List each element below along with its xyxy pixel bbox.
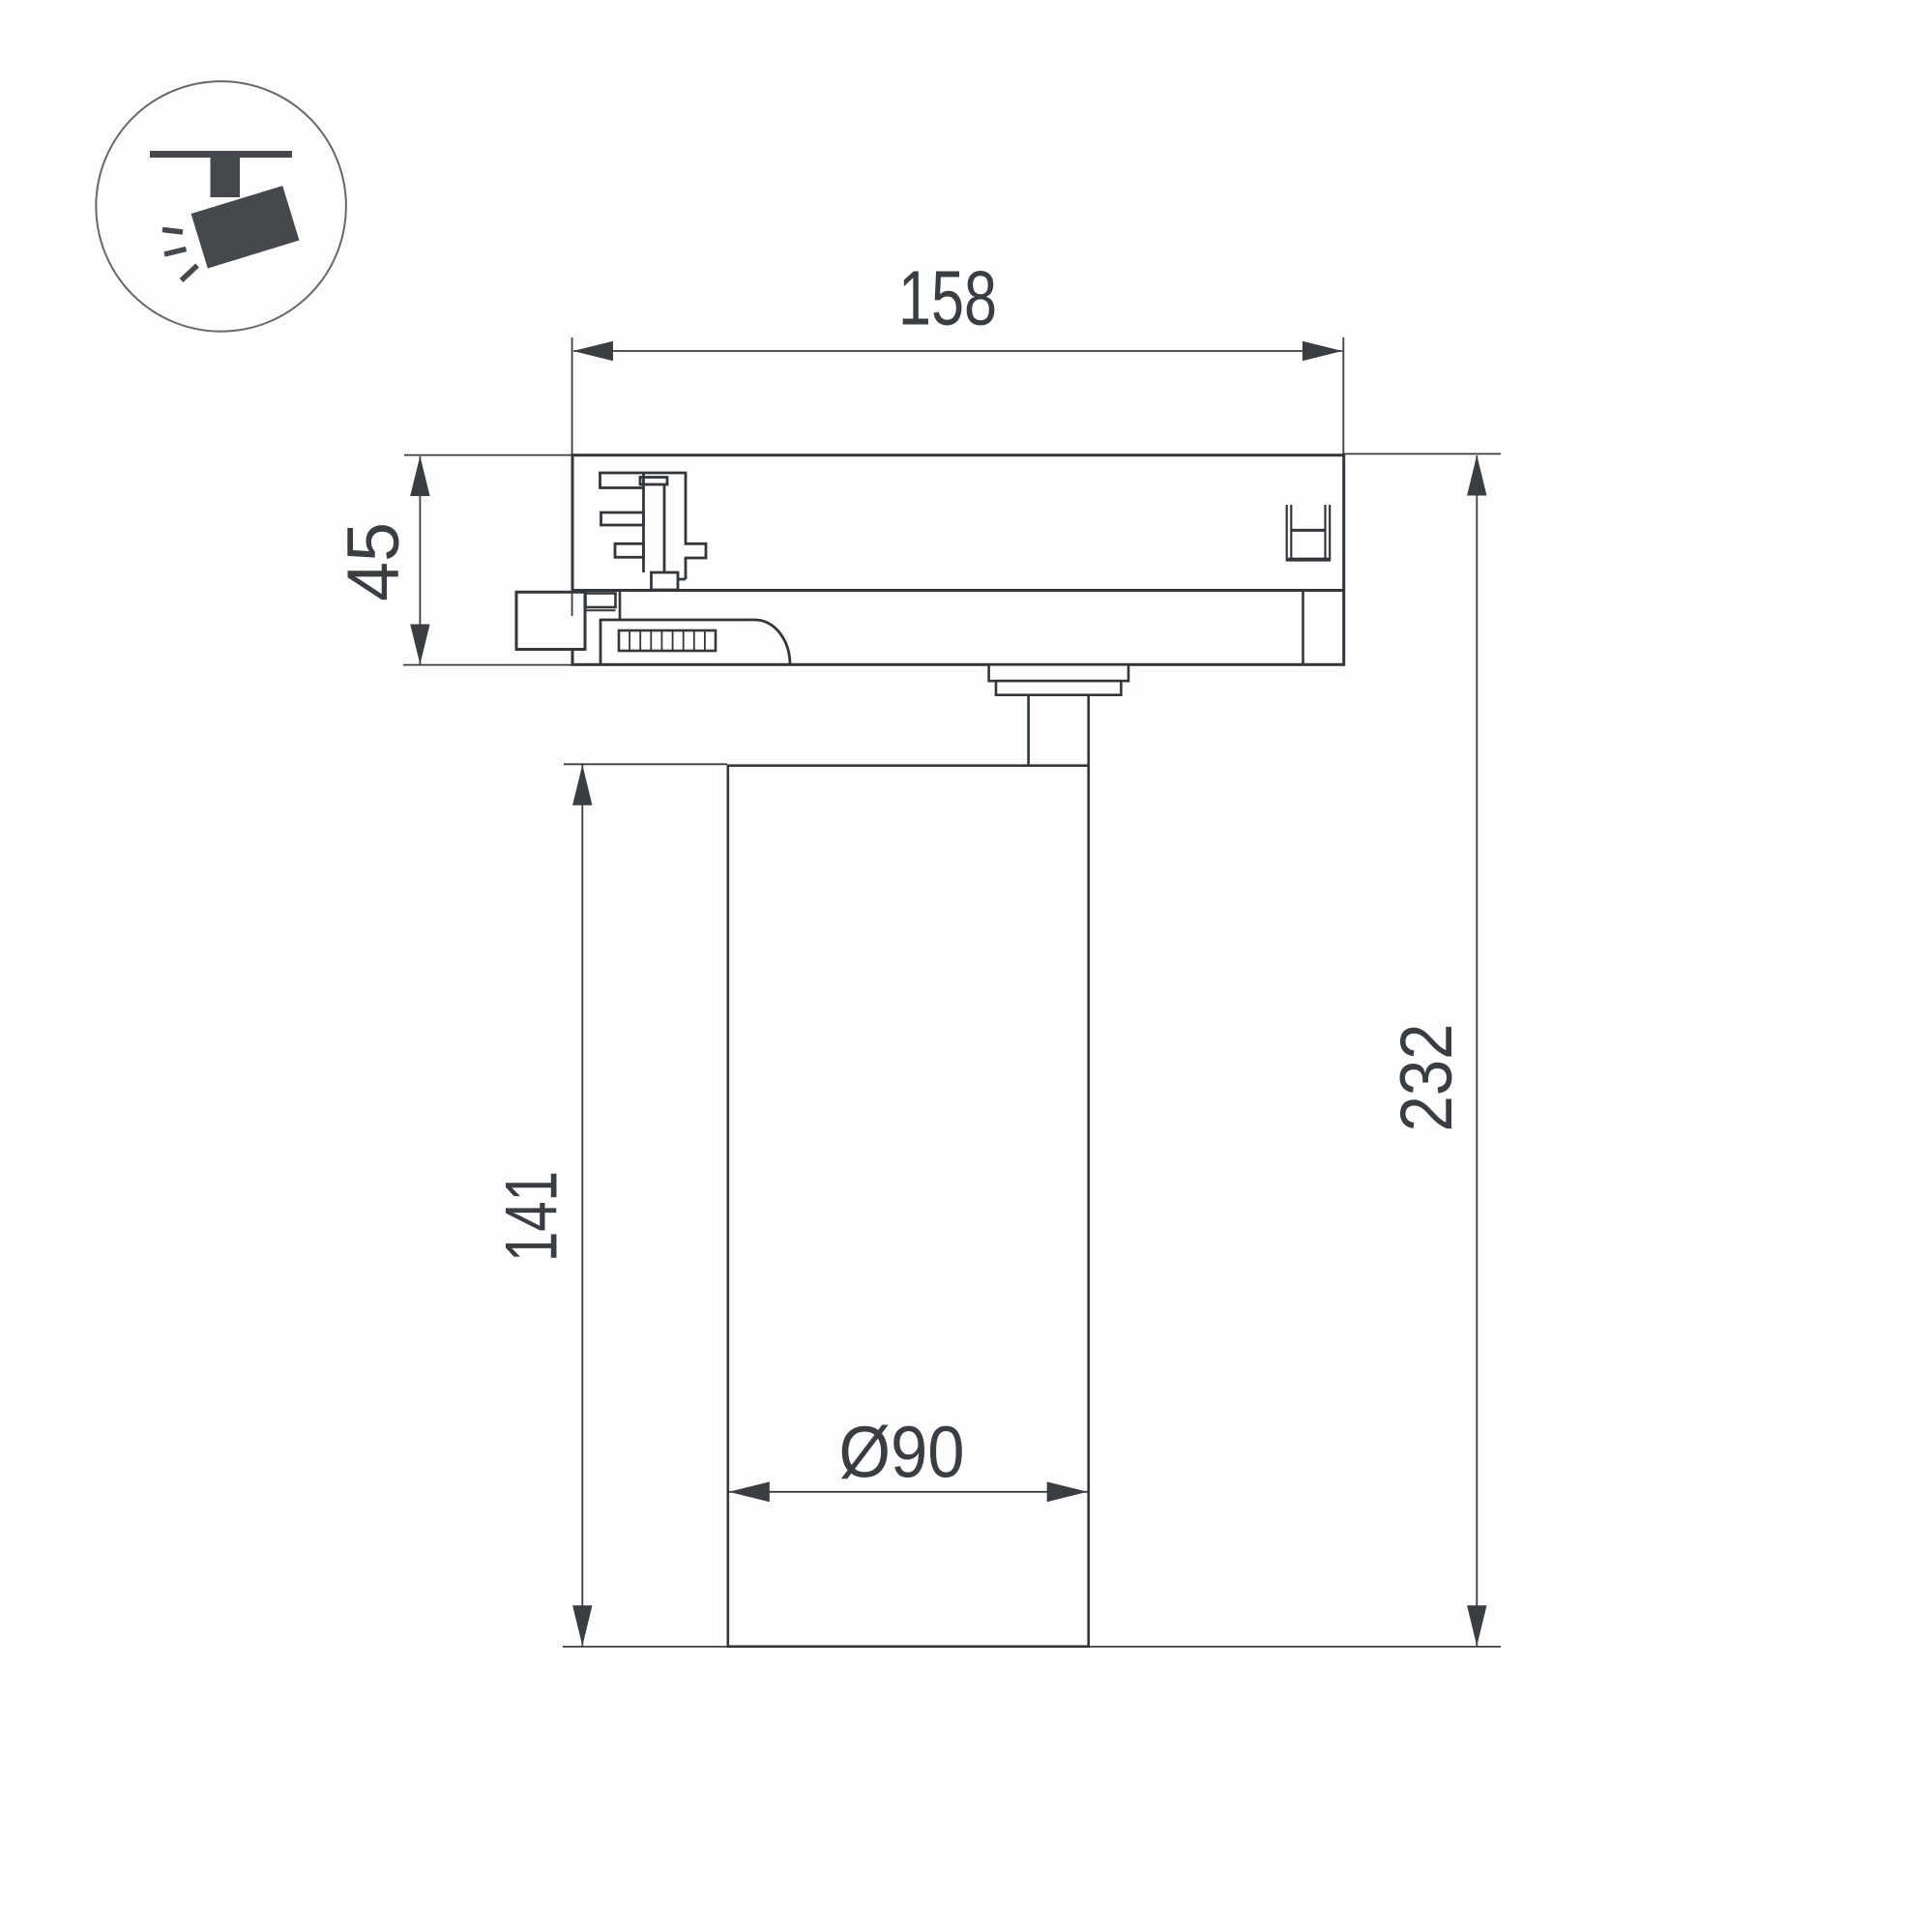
svg-text:45: 45 xyxy=(333,522,415,601)
svg-text:Ø90: Ø90 xyxy=(839,1412,965,1493)
svg-text:141: 141 xyxy=(491,1171,573,1262)
svg-text:158: 158 xyxy=(898,255,997,341)
svg-text:232: 232 xyxy=(1386,1024,1468,1132)
